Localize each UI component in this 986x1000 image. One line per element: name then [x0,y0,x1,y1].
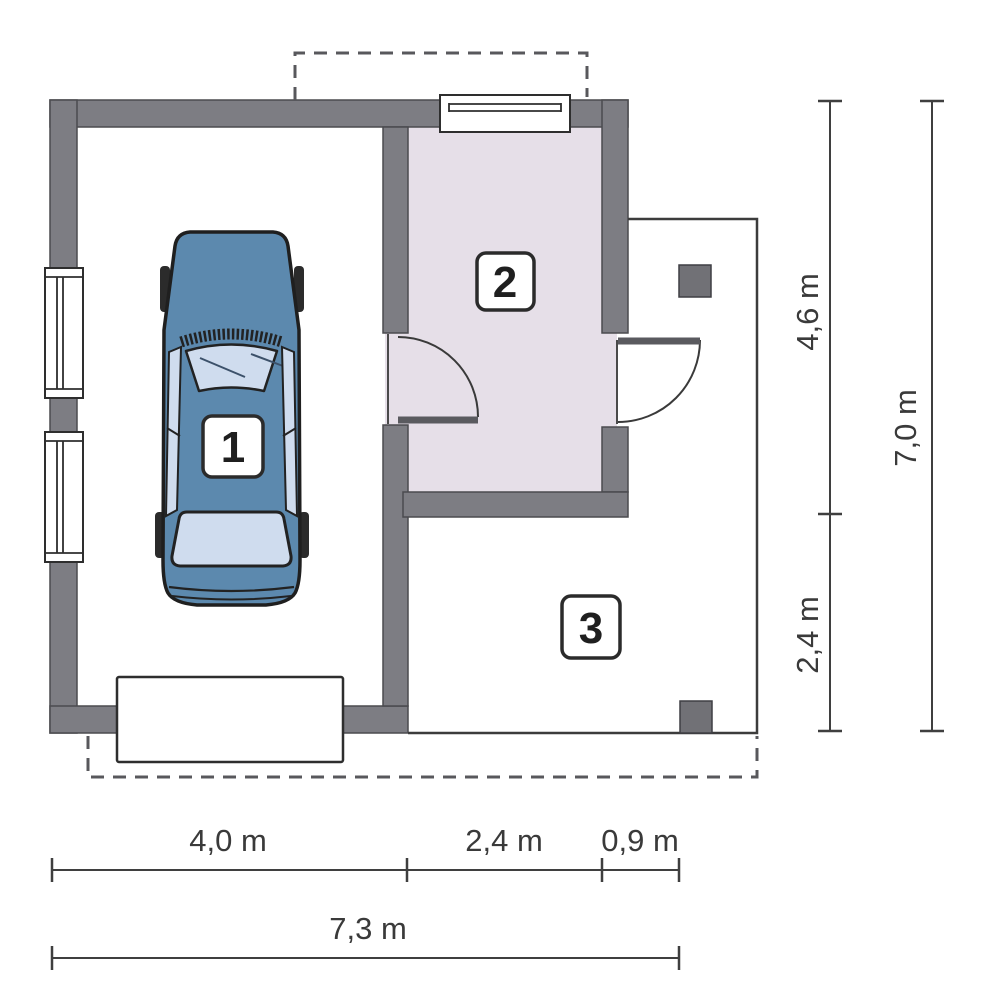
room-label-1: 1 [203,416,263,477]
floor-plan-page: 1 2 3 4,0 m 2,4 m 0,9 m 7,3 m 4,6 m 2,4 … [0,0,986,1000]
dim-2-4-m-bottom: 2,4 m [465,823,543,858]
roof-outline-top [295,53,587,100]
room-3-number: 3 [579,604,603,653]
car-windshield [172,512,291,566]
room-1-number: 1 [221,423,245,472]
room2-right-wall-upper [602,100,628,333]
dim-4-0-m: 4,0 m [189,823,267,858]
window-left-upper [45,268,83,398]
room-label-2: 2 [477,253,534,310]
middle-wall-lower [383,425,408,706]
dim-2-4-m-right: 2,4 m [790,596,825,674]
left-wall [50,100,77,733]
dim-7-3-m: 7,3 m [329,911,407,946]
room-2-number: 2 [493,258,517,307]
pillar-bottom [680,701,712,733]
middle-wall-upper [383,127,408,333]
garage-door [117,677,343,762]
dim-0-9-m: 0,9 m [601,823,679,858]
dimension-bottom-total: 7,3 m [52,911,679,970]
door-2-opening-floor [602,333,617,427]
room-label-3: 3 [562,596,620,658]
dimension-right-total: 7,0 m [888,101,944,731]
pillar-top [679,265,711,297]
dim-4-6-m: 4,6 m [790,273,825,351]
floor-plan-drawing: 1 2 3 4,0 m 2,4 m 0,9 m 7,3 m 4,6 m 2,4 … [0,0,986,1000]
window-top [440,95,570,132]
room2-right-wall-lower [602,427,628,492]
window-left-lower [45,432,83,562]
dimension-right-segments: 4,6 m 2,4 m [790,101,842,731]
dimension-bottom-segments: 4,0 m 2,4 m 0,9 m [52,823,679,882]
car-rear-window [186,345,277,392]
dim-7-0-m: 7,0 m [888,389,923,467]
room2-bottom-wall [403,492,628,517]
door-room2-terrace [617,340,700,424]
